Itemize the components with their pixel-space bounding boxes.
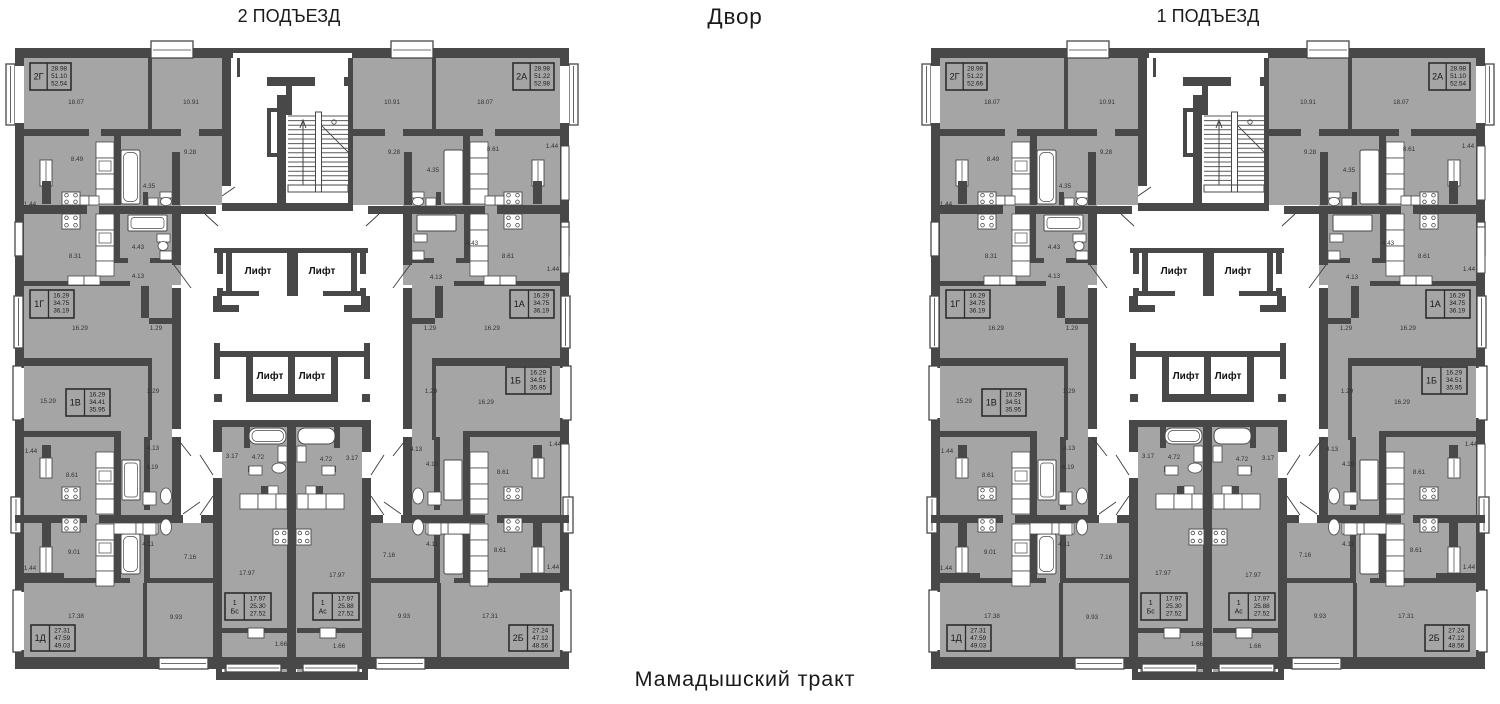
svg-text:Лифт: Лифт	[1161, 265, 1188, 277]
svg-text:4.72: 4.72	[1168, 454, 1181, 461]
svg-text:4.19: 4.19	[1342, 461, 1355, 468]
svg-text:1.44: 1.44	[940, 565, 953, 572]
svg-text:4.19: 4.19	[426, 461, 439, 468]
svg-text:28.98: 28.98	[534, 66, 550, 73]
svg-text:2Б: 2Б	[513, 633, 524, 643]
svg-text:15.29: 15.29	[40, 398, 56, 405]
svg-text:8.61: 8.61	[66, 472, 79, 479]
svg-text:17.97: 17.97	[1245, 572, 1261, 579]
svg-text:25.30: 25.30	[1166, 603, 1182, 610]
svg-text:1: 1	[1149, 600, 1153, 607]
svg-text:4.13: 4.13	[1326, 446, 1339, 453]
svg-text:1.29: 1.29	[1340, 325, 1353, 332]
svg-text:1.44: 1.44	[547, 266, 560, 273]
svg-text:17.31: 17.31	[482, 613, 498, 620]
svg-text:4.13: 4.13	[1048, 273, 1061, 280]
svg-text:1.29: 1.29	[150, 325, 163, 332]
svg-text:16.29: 16.29	[53, 293, 69, 300]
svg-text:51.10: 51.10	[51, 73, 67, 80]
svg-text:4.13: 4.13	[1346, 274, 1359, 281]
svg-text:4.11: 4.11	[426, 541, 438, 548]
svg-text:1.44: 1.44	[940, 201, 953, 208]
svg-text:9.93: 9.93	[1314, 613, 1327, 620]
svg-text:1 ПОДЪЕЗД: 1 ПОДЪЕЗД	[1157, 6, 1260, 26]
svg-text:1Г: 1Г	[34, 299, 44, 309]
svg-text:4.11: 4.11	[1058, 541, 1070, 548]
svg-text:3.17: 3.17	[346, 455, 359, 462]
svg-text:1.44: 1.44	[1463, 266, 1476, 273]
svg-text:4.43: 4.43	[1048, 244, 1061, 251]
svg-text:47.12: 47.12	[532, 635, 548, 642]
svg-text:18.07: 18.07	[68, 99, 84, 106]
svg-text:16.29: 16.29	[1005, 392, 1021, 399]
svg-text:27.52: 27.52	[1254, 611, 1270, 618]
svg-text:4.11: 4.11	[1342, 541, 1354, 548]
svg-text:8.31: 8.31	[69, 253, 82, 260]
svg-text:Лифт: Лифт	[245, 265, 272, 277]
svg-text:1В: 1В	[986, 398, 997, 408]
svg-text:17.97: 17.97	[250, 596, 266, 603]
svg-text:Лифт: Лифт	[257, 370, 284, 382]
svg-text:7.16: 7.16	[1299, 552, 1312, 559]
svg-text:18.07: 18.07	[984, 99, 1000, 106]
svg-text:1: 1	[1237, 600, 1241, 607]
svg-text:1.44: 1.44	[25, 448, 38, 455]
svg-text:4.43: 4.43	[1382, 240, 1395, 247]
svg-text:4.13: 4.13	[132, 273, 145, 280]
svg-text:34.51: 34.51	[1446, 377, 1462, 384]
svg-text:17.97: 17.97	[329, 572, 345, 579]
svg-text:Бс: Бс	[1147, 609, 1156, 616]
svg-text:27.24: 27.24	[1448, 628, 1464, 635]
svg-text:27.52: 27.52	[338, 611, 354, 618]
svg-text:34.51: 34.51	[1005, 399, 1021, 406]
svg-text:49.03: 49.03	[54, 643, 70, 650]
svg-text:17.38: 17.38	[984, 613, 1000, 620]
svg-text:8.61: 8.61	[487, 146, 500, 153]
svg-text:16.29: 16.29	[72, 325, 88, 332]
svg-text:17.97: 17.97	[239, 570, 255, 577]
svg-text:2Г: 2Г	[950, 72, 960, 82]
svg-text:52.54: 52.54	[51, 81, 67, 88]
svg-text:9.28: 9.28	[184, 149, 197, 156]
svg-text:8.61: 8.61	[494, 547, 507, 554]
svg-text:16.29: 16.29	[478, 399, 494, 406]
svg-text:35.95: 35.95	[1005, 407, 1021, 414]
svg-text:1.29: 1.29	[425, 388, 438, 395]
svg-text:Ас: Ас	[1235, 609, 1244, 616]
svg-text:3.17: 3.17	[1142, 453, 1155, 460]
svg-text:48.56: 48.56	[532, 643, 548, 650]
svg-text:51.10: 51.10	[1450, 73, 1466, 80]
svg-text:1.44: 1.44	[546, 143, 559, 150]
svg-text:28.98: 28.98	[967, 66, 983, 73]
svg-text:3.17: 3.17	[1262, 455, 1275, 462]
svg-text:Лифт: Лифт	[309, 265, 336, 277]
svg-text:1Д: 1Д	[951, 633, 962, 643]
svg-text:8.61: 8.61	[502, 253, 515, 260]
svg-text:17.38: 17.38	[68, 613, 84, 620]
svg-text:1.29: 1.29	[1066, 325, 1079, 332]
svg-text:34.41: 34.41	[89, 399, 105, 406]
svg-text:4.35: 4.35	[1343, 167, 1356, 174]
svg-text:1.44: 1.44	[24, 201, 37, 208]
svg-text:17.97: 17.97	[338, 596, 354, 603]
svg-text:17.97: 17.97	[1166, 596, 1182, 603]
svg-text:1.66: 1.66	[275, 641, 288, 648]
svg-text:4.72: 4.72	[1236, 456, 1249, 463]
svg-text:8.49: 8.49	[71, 156, 84, 163]
svg-text:25.88: 25.88	[338, 603, 354, 610]
svg-text:10.91: 10.91	[1300, 99, 1316, 106]
svg-text:27.31: 27.31	[970, 628, 986, 635]
svg-text:36.19: 36.19	[53, 308, 69, 315]
svg-text:52.98: 52.98	[534, 81, 550, 88]
svg-text:4.11: 4.11	[142, 541, 154, 548]
svg-text:1: 1	[321, 600, 325, 607]
svg-text:1Б: 1Б	[510, 376, 521, 386]
svg-text:9.01: 9.01	[68, 549, 81, 556]
svg-text:51.22: 51.22	[534, 73, 550, 80]
svg-text:4.43: 4.43	[466, 240, 479, 247]
svg-text:16.29: 16.29	[89, 392, 105, 399]
svg-text:Двор: Двор	[707, 4, 762, 29]
svg-text:35.95: 35.95	[1446, 385, 1462, 392]
svg-text:51.22: 51.22	[967, 73, 983, 80]
svg-text:8.61: 8.61	[1403, 146, 1416, 153]
svg-text:34.51: 34.51	[530, 377, 546, 384]
svg-text:1.66: 1.66	[1191, 641, 1204, 648]
svg-text:4.13: 4.13	[147, 445, 160, 452]
svg-text:28.98: 28.98	[51, 66, 67, 73]
svg-text:8.61: 8.61	[982, 472, 995, 479]
svg-text:35.95: 35.95	[89, 407, 105, 414]
svg-text:34.75: 34.75	[533, 300, 549, 307]
svg-text:27.24: 27.24	[532, 628, 548, 635]
svg-text:27.52: 27.52	[250, 611, 266, 618]
svg-text:Лифт: Лифт	[299, 370, 326, 382]
svg-text:35.95: 35.95	[530, 385, 546, 392]
svg-text:4.13: 4.13	[410, 446, 423, 453]
svg-text:16.29: 16.29	[969, 293, 985, 300]
svg-text:34.75: 34.75	[53, 300, 69, 307]
svg-text:2 ПОДЪЕЗД: 2 ПОДЪЕЗД	[238, 6, 341, 26]
svg-text:47.12: 47.12	[1448, 635, 1464, 642]
svg-text:1А: 1А	[514, 299, 525, 309]
svg-text:2Б: 2Б	[1429, 633, 1440, 643]
svg-text:47.59: 47.59	[54, 635, 70, 642]
svg-text:8.61: 8.61	[1418, 253, 1431, 260]
svg-text:16.29: 16.29	[530, 370, 546, 377]
svg-text:10.91: 10.91	[183, 99, 199, 106]
svg-text:1В: 1В	[70, 398, 81, 408]
svg-text:8.61: 8.61	[1413, 469, 1426, 476]
svg-text:16.29: 16.29	[533, 293, 549, 300]
svg-text:52.66: 52.66	[967, 81, 983, 88]
svg-text:36.19: 36.19	[969, 308, 985, 315]
svg-text:4.35: 4.35	[1059, 183, 1072, 190]
svg-text:2А: 2А	[516, 72, 527, 82]
svg-text:48.56: 48.56	[1448, 643, 1464, 650]
svg-text:8.61: 8.61	[497, 469, 510, 476]
svg-text:Лифт: Лифт	[1173, 370, 1200, 382]
svg-text:49.03: 49.03	[970, 643, 986, 650]
svg-text:16.29: 16.29	[988, 325, 1004, 332]
svg-text:8.49: 8.49	[987, 156, 1000, 163]
svg-text:16.29: 16.29	[1446, 370, 1462, 377]
svg-text:25.88: 25.88	[1254, 603, 1270, 610]
svg-text:9.93: 9.93	[1086, 614, 1099, 621]
svg-text:1Д: 1Д	[35, 633, 46, 643]
svg-text:7.16: 7.16	[184, 554, 197, 561]
svg-text:16.29: 16.29	[484, 325, 500, 332]
svg-text:1.44: 1.44	[1465, 441, 1478, 448]
svg-text:4.35: 4.35	[427, 167, 440, 174]
svg-text:9.01: 9.01	[984, 549, 997, 556]
svg-text:10.91: 10.91	[384, 99, 400, 106]
svg-text:25.30: 25.30	[250, 603, 266, 610]
svg-text:1А: 1А	[1430, 299, 1441, 309]
svg-text:1.29: 1.29	[1341, 388, 1354, 395]
svg-text:4.19: 4.19	[1062, 464, 1075, 471]
svg-text:4.19: 4.19	[146, 464, 159, 471]
svg-text:10.91: 10.91	[1099, 99, 1115, 106]
svg-text:3.17: 3.17	[226, 453, 239, 460]
svg-text:1.29: 1.29	[1063, 388, 1076, 395]
svg-text:27.52: 27.52	[1166, 611, 1182, 618]
svg-text:1.44: 1.44	[1463, 564, 1476, 571]
svg-text:Лифт: Лифт	[1225, 265, 1252, 277]
svg-text:27.31: 27.31	[54, 628, 70, 635]
svg-text:1.29: 1.29	[147, 388, 160, 395]
svg-text:1.44: 1.44	[1462, 143, 1475, 150]
svg-text:4.43: 4.43	[132, 244, 145, 251]
svg-text:4.72: 4.72	[252, 454, 265, 461]
svg-text:1.66: 1.66	[1249, 643, 1262, 650]
svg-text:7.16: 7.16	[1100, 554, 1113, 561]
svg-text:8.61: 8.61	[1410, 547, 1423, 554]
svg-text:16.29: 16.29	[1394, 399, 1410, 406]
svg-text:4.13: 4.13	[1063, 445, 1076, 452]
svg-text:1Г: 1Г	[950, 299, 960, 309]
svg-text:9.93: 9.93	[170, 614, 183, 621]
svg-text:4.72: 4.72	[320, 456, 333, 463]
svg-text:52.54: 52.54	[1450, 81, 1466, 88]
svg-text:36.19: 36.19	[533, 308, 549, 315]
svg-text:16.29: 16.29	[1400, 325, 1416, 332]
svg-text:1.29: 1.29	[424, 325, 437, 332]
svg-text:9.28: 9.28	[1100, 149, 1113, 156]
svg-text:9.93: 9.93	[398, 613, 411, 620]
svg-text:9.28: 9.28	[1304, 149, 1317, 156]
svg-text:17.31: 17.31	[1398, 613, 1414, 620]
svg-text:Лифт: Лифт	[1215, 370, 1242, 382]
svg-text:34.75: 34.75	[1449, 300, 1465, 307]
svg-text:28.98: 28.98	[1450, 66, 1466, 73]
svg-text:1Б: 1Б	[1426, 376, 1437, 386]
svg-text:1.44: 1.44	[941, 448, 954, 455]
svg-text:8.31: 8.31	[985, 253, 998, 260]
svg-text:7.16: 7.16	[383, 552, 396, 559]
svg-text:4.13: 4.13	[430, 274, 443, 281]
svg-text:17.97: 17.97	[1155, 570, 1171, 577]
svg-text:1.44: 1.44	[549, 441, 562, 448]
svg-text:2Г: 2Г	[34, 72, 44, 82]
svg-text:Бс: Бс	[231, 609, 240, 616]
svg-text:1: 1	[233, 600, 237, 607]
svg-text:2А: 2А	[1432, 72, 1443, 82]
svg-text:17.97: 17.97	[1254, 596, 1270, 603]
svg-text:47.59: 47.59	[970, 635, 986, 642]
svg-text:1.44: 1.44	[24, 565, 37, 572]
svg-text:1.66: 1.66	[333, 643, 346, 650]
svg-text:18.07: 18.07	[1393, 99, 1409, 106]
svg-text:16.29: 16.29	[1449, 293, 1465, 300]
svg-text:34.75: 34.75	[969, 300, 985, 307]
svg-text:Мамадышский тракт: Мамадышский тракт	[635, 667, 856, 691]
svg-text:36.19: 36.19	[1449, 308, 1465, 315]
svg-text:9.28: 9.28	[388, 149, 401, 156]
svg-text:1.44: 1.44	[547, 564, 560, 571]
svg-text:Ас: Ас	[319, 609, 328, 616]
svg-text:18.07: 18.07	[477, 99, 493, 106]
svg-text:4.35: 4.35	[143, 183, 156, 190]
svg-text:15.29: 15.29	[956, 398, 972, 405]
